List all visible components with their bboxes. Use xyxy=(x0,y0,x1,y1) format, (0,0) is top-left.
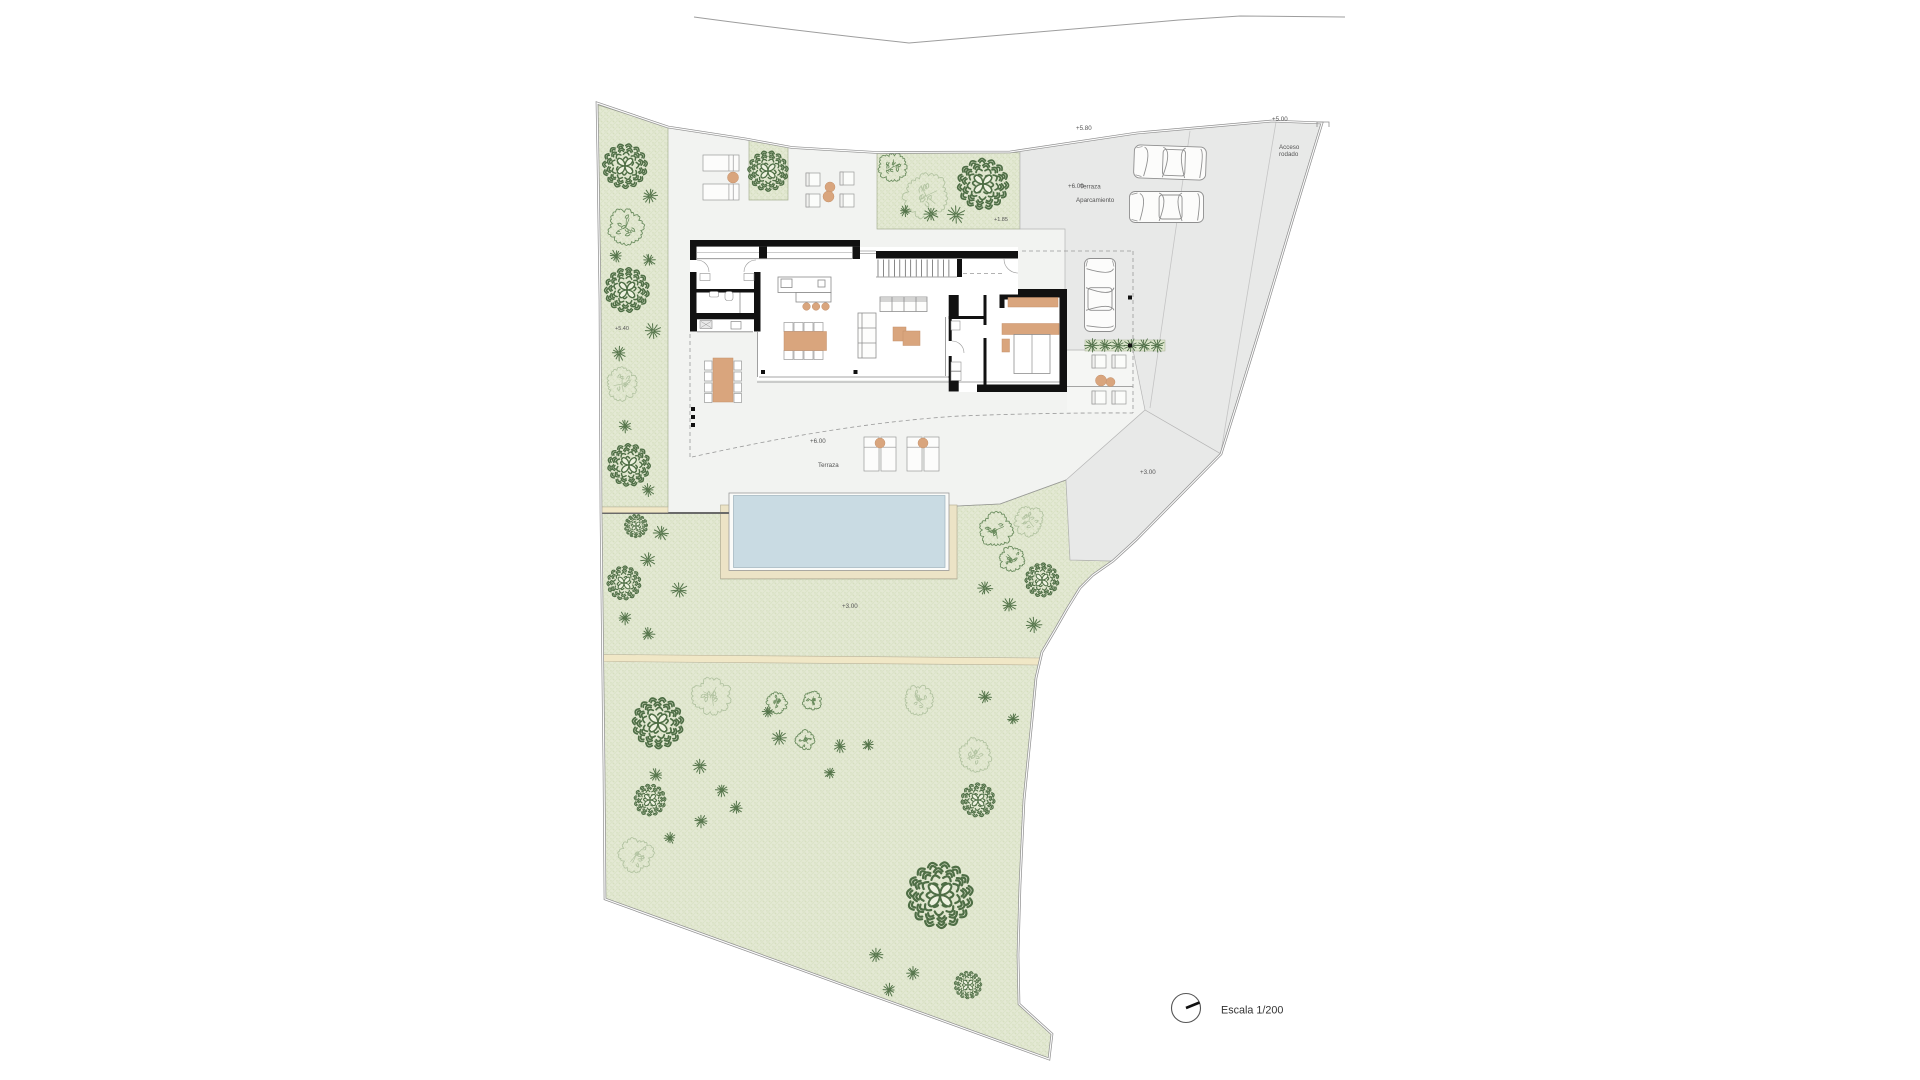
svg-text:Aparcamiento: Aparcamiento xyxy=(1076,197,1115,204)
svg-text:Terraza: Terraza xyxy=(818,462,839,469)
svg-text:+5.80: +5.80 xyxy=(1076,125,1092,132)
svg-text:+6.00: +6.00 xyxy=(810,438,826,445)
svg-text:Acceso: Acceso xyxy=(1279,144,1300,151)
svg-text:+5.00: +5.00 xyxy=(1272,116,1288,123)
svg-text:+1.85: +1.85 xyxy=(994,217,1008,223)
svg-text:+3.00: +3.00 xyxy=(1140,469,1156,476)
svg-text:rodado: rodado xyxy=(1279,151,1299,158)
svg-text:+5.40: +5.40 xyxy=(615,326,629,332)
svg-text:Terraza: Terraza xyxy=(1080,184,1101,191)
svg-text:+3.00: +3.00 xyxy=(842,603,858,610)
svg-text:Escala 1/200: Escala 1/200 xyxy=(1221,1005,1283,1017)
